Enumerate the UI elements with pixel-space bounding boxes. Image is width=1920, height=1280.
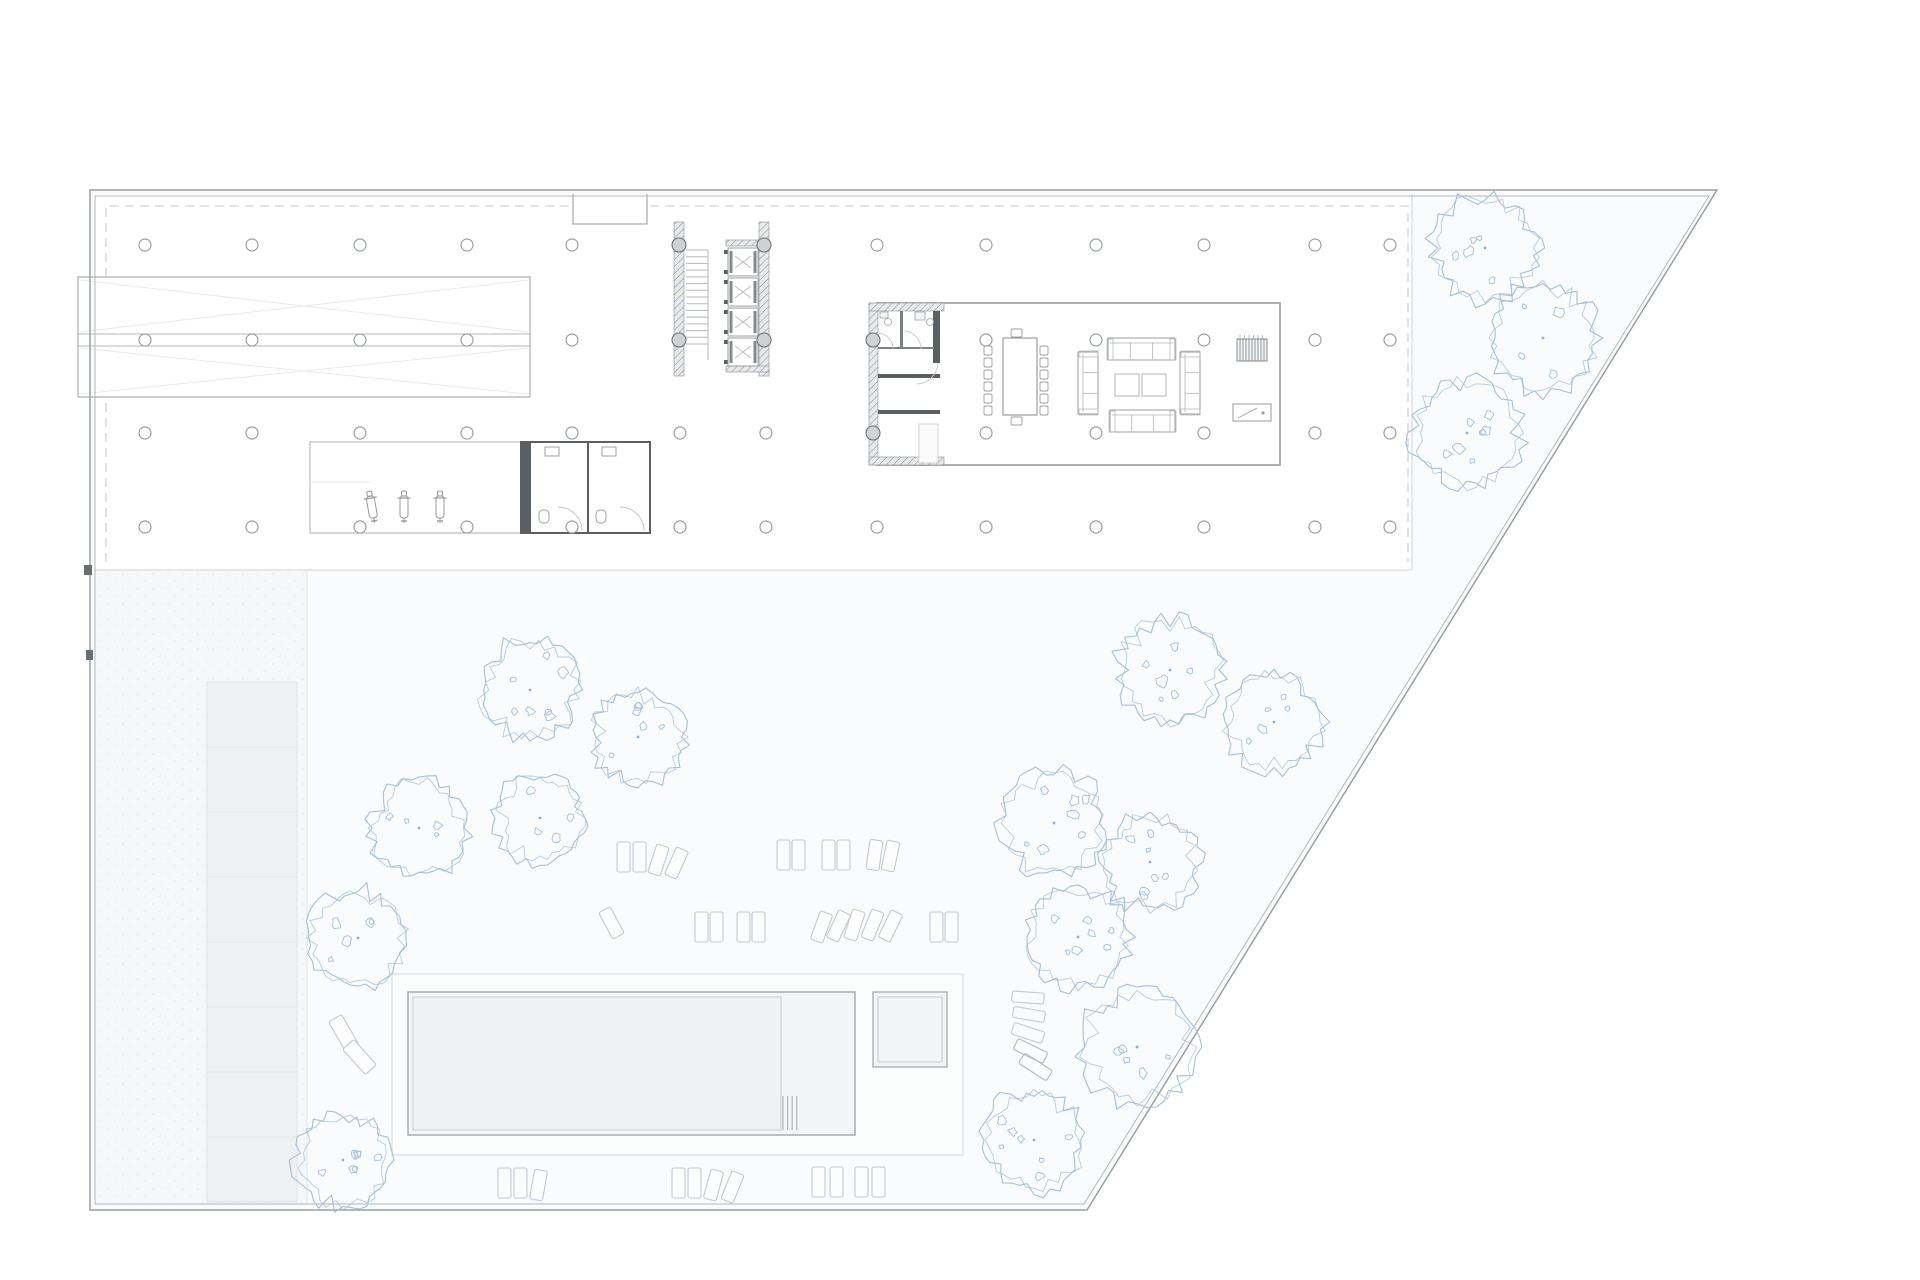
- column: [980, 427, 992, 439]
- column: [246, 427, 258, 439]
- column: [760, 427, 772, 439]
- column: [246, 334, 258, 346]
- column: [871, 521, 883, 533]
- column: [760, 521, 772, 533]
- lounge-interior-wall: [878, 410, 940, 414]
- column: [139, 427, 151, 439]
- column: [1090, 239, 1102, 251]
- column: [1198, 521, 1210, 533]
- sunbed: [617, 842, 630, 872]
- column: [354, 239, 366, 251]
- sunbed: [945, 912, 958, 942]
- pool-water: [413, 997, 781, 1130]
- elevator-car: [724, 338, 758, 366]
- column: [1198, 239, 1210, 251]
- wc-partition: [903, 347, 934, 349]
- sunbed: [872, 1167, 885, 1197]
- sunbed: [777, 840, 790, 870]
- sunbed: [855, 1167, 868, 1197]
- column: [1309, 334, 1321, 346]
- wc-partition: [900, 311, 903, 349]
- column: [566, 239, 578, 251]
- column: [566, 334, 578, 346]
- sunbed: [633, 842, 646, 872]
- column: [1309, 521, 1321, 533]
- core-column: [757, 238, 771, 252]
- column: [1309, 427, 1321, 439]
- sofa: [1078, 351, 1098, 415]
- column: [871, 239, 883, 251]
- column: [246, 239, 258, 251]
- sunbed: [737, 912, 750, 942]
- elevator-car: [724, 308, 758, 336]
- sink-fixture: [915, 312, 925, 320]
- sunbed: [710, 912, 723, 942]
- sunbed: [830, 1167, 843, 1197]
- core-column: [866, 426, 880, 440]
- sunbed: [514, 1168, 527, 1198]
- column: [566, 521, 578, 533]
- sunbed: [498, 1168, 511, 1198]
- sunbed: [672, 1168, 685, 1198]
- elevator-car: [724, 248, 758, 276]
- core-column: [866, 333, 880, 347]
- core-column: [672, 333, 686, 347]
- column: [980, 239, 992, 251]
- column: [1090, 521, 1102, 533]
- piano: [1237, 335, 1267, 361]
- column: [1384, 334, 1396, 346]
- column: [461, 239, 473, 251]
- column: [980, 521, 992, 533]
- column: [354, 334, 366, 346]
- column: [1384, 521, 1396, 533]
- column: [1198, 334, 1210, 346]
- sink-fixture: [880, 312, 888, 318]
- column: [1090, 427, 1102, 439]
- desk: [1233, 404, 1271, 421]
- garage-room: [310, 442, 521, 533]
- sofa: [1180, 351, 1200, 415]
- core-wall-cap: [726, 366, 769, 372]
- column: [1198, 427, 1210, 439]
- column: [566, 427, 578, 439]
- core-column: [757, 333, 771, 347]
- sunbed: [822, 840, 835, 870]
- spa: [873, 992, 947, 1067]
- sunbed: [930, 912, 943, 942]
- sunbed: [695, 912, 708, 942]
- column: [674, 521, 686, 533]
- column: [1090, 334, 1102, 346]
- lounge-interior-wall: [878, 374, 940, 378]
- column: [980, 334, 992, 346]
- column: [354, 427, 366, 439]
- column: [139, 239, 151, 251]
- core-column: [672, 238, 686, 252]
- column: [246, 521, 258, 533]
- column: [139, 521, 151, 533]
- boundary-tick: [84, 565, 92, 575]
- sunbed: [752, 912, 765, 942]
- sunbed: [688, 1168, 701, 1198]
- wc-partition: [878, 347, 900, 349]
- column: [354, 521, 366, 533]
- sofa: [1107, 338, 1176, 360]
- sunbed: [837, 840, 850, 870]
- entrance-vestibule: [573, 194, 647, 224]
- floor-plan: [0, 0, 1920, 1280]
- wc-block: [521, 442, 650, 533]
- wc-block-wall: [521, 442, 531, 533]
- column: [461, 427, 473, 439]
- column: [461, 521, 473, 533]
- boundary-tick: [86, 650, 93, 660]
- lounge-interior-wall: [933, 311, 940, 363]
- column: [1384, 239, 1396, 251]
- column: [139, 334, 151, 346]
- sunbed: [792, 840, 805, 870]
- sunbed: [812, 1167, 825, 1197]
- counter: [919, 424, 938, 463]
- column: [674, 427, 686, 439]
- column: [1309, 239, 1321, 251]
- column: [1384, 427, 1396, 439]
- lounge-hatched-wall: [869, 303, 944, 311]
- elevator-car: [724, 278, 758, 306]
- column: [461, 334, 473, 346]
- floor-plan-canvas: [0, 0, 1920, 1280]
- sofa: [1109, 410, 1176, 432]
- lounge-hatched-wall: [869, 303, 878, 465]
